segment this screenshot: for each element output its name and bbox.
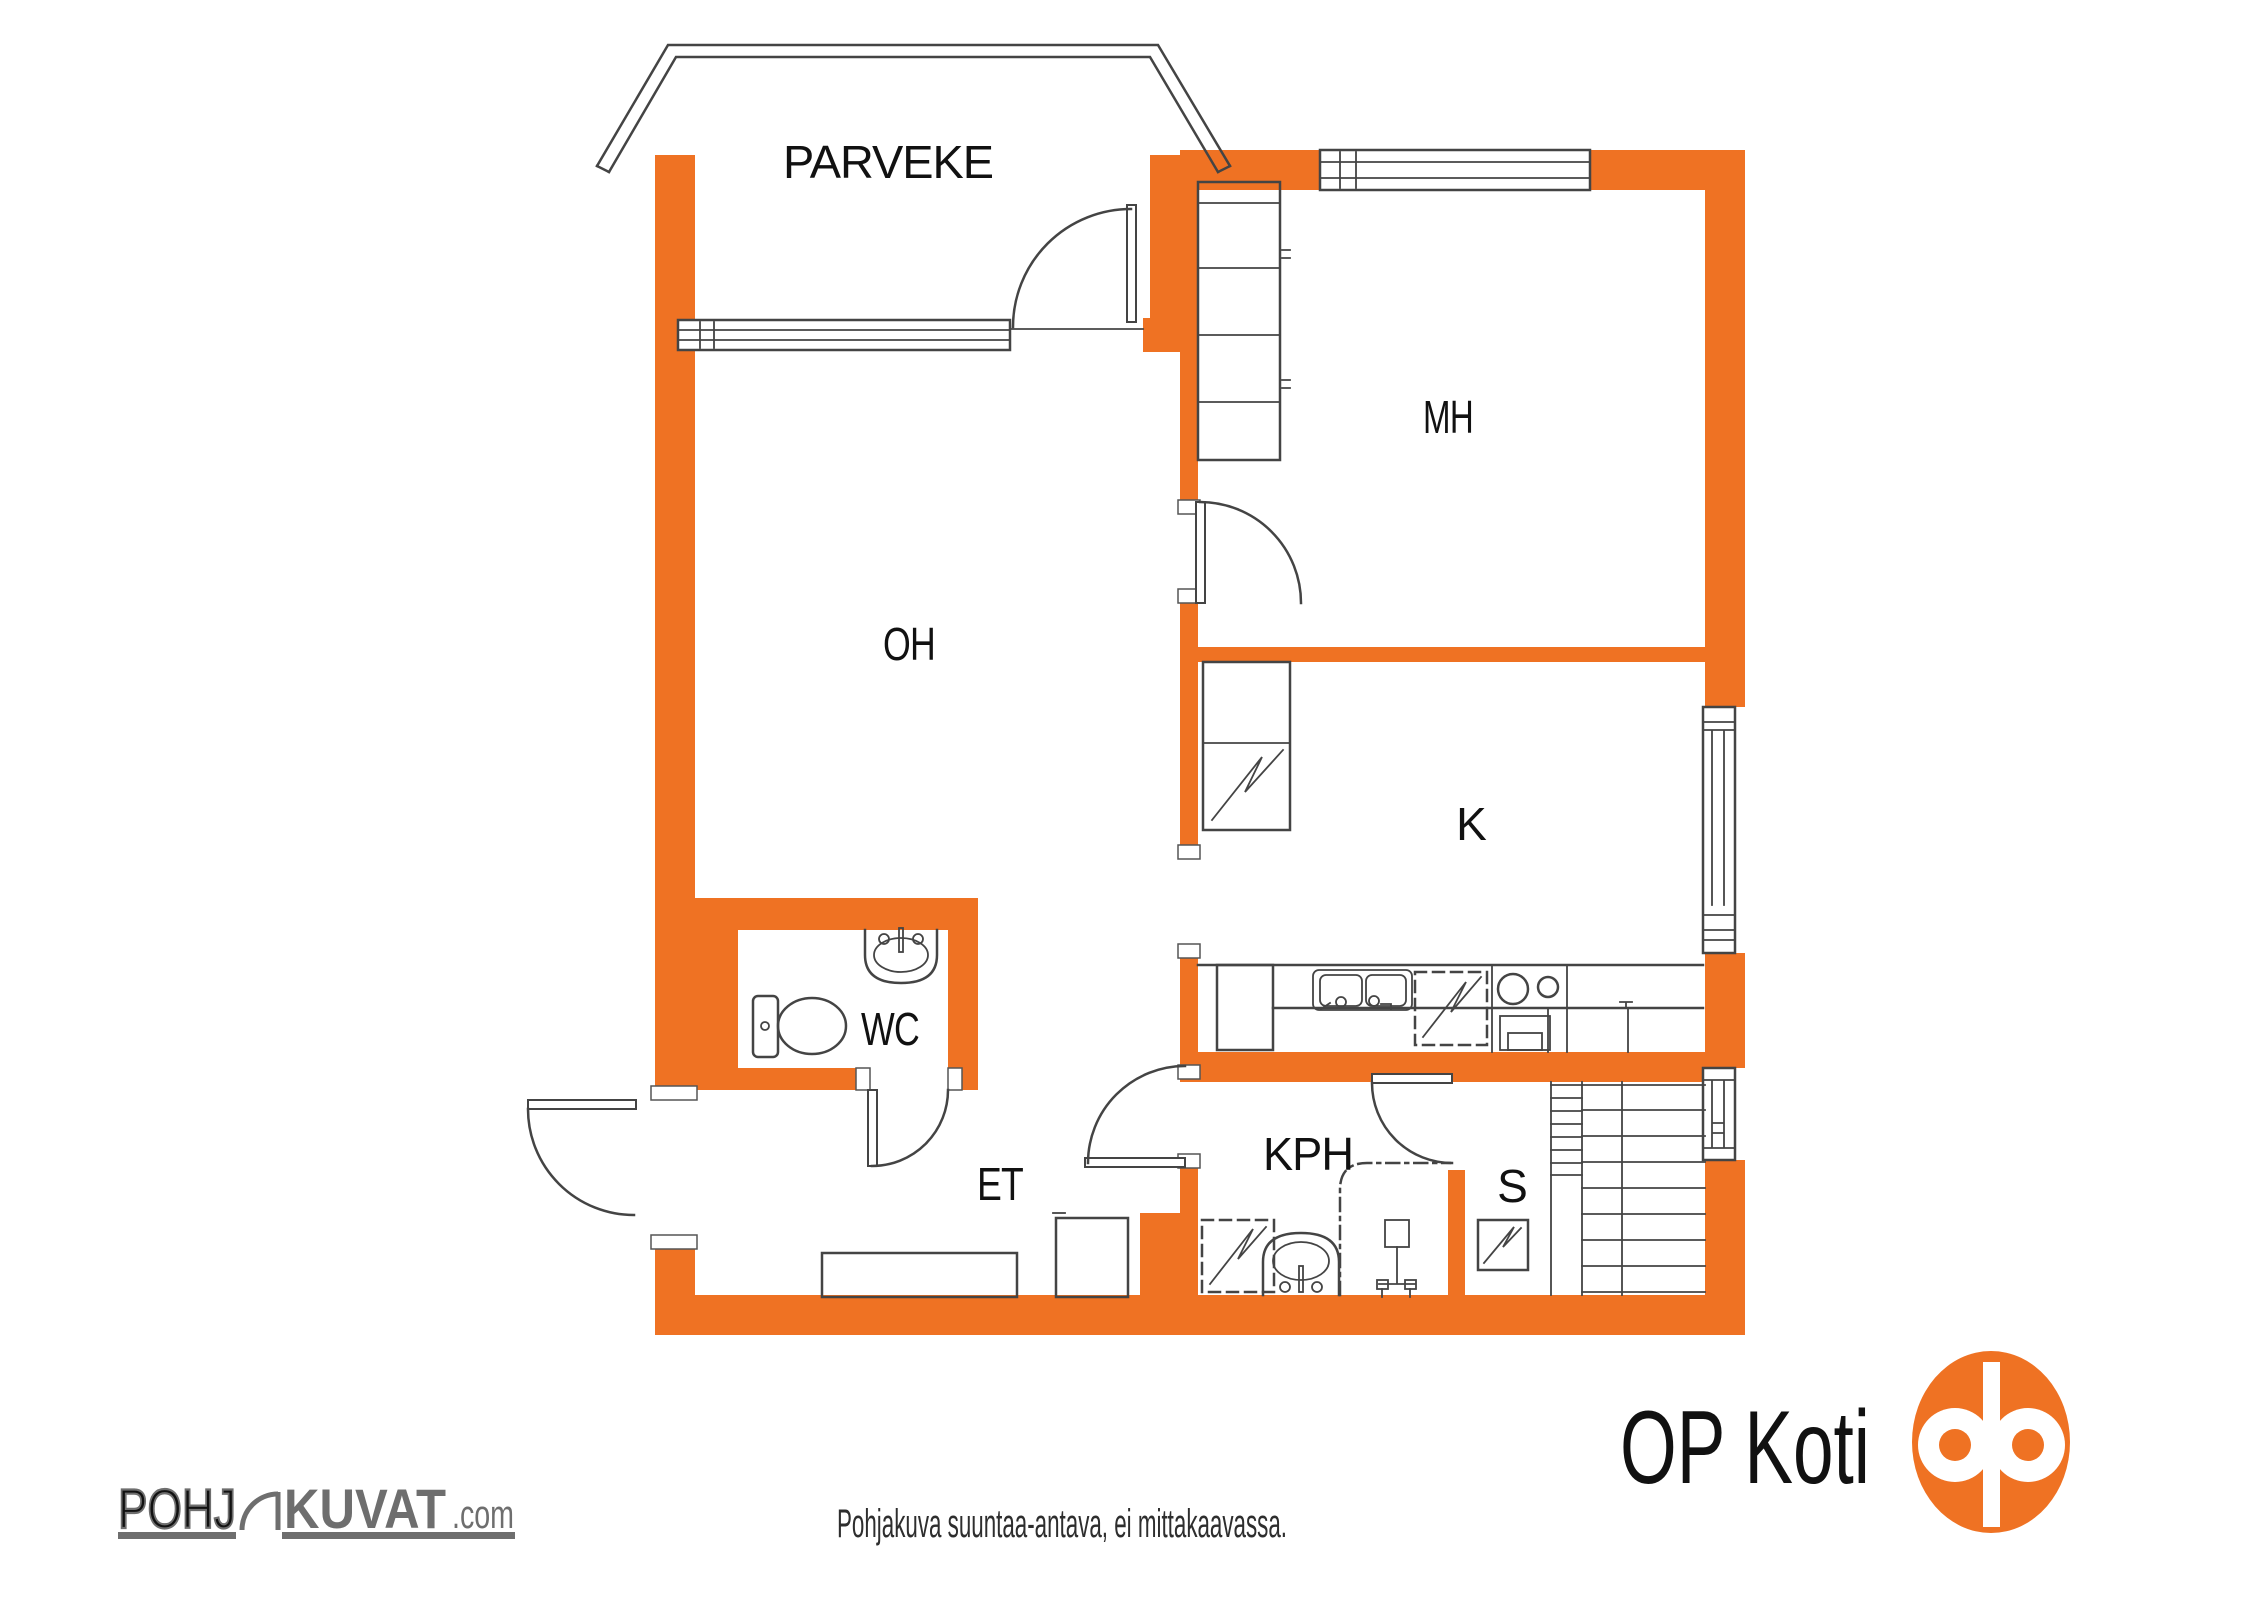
wc-door-arc xyxy=(872,1090,948,1166)
wall-wc-west xyxy=(695,930,738,1090)
et-bench xyxy=(822,1253,1017,1297)
wall-oh-mh xyxy=(1180,190,1198,500)
entrance-door-arc xyxy=(528,1109,634,1215)
room-label-kph: KPH xyxy=(1263,1128,1353,1180)
op-logo-icon xyxy=(1912,1351,2070,1533)
window-oh-balcony xyxy=(678,320,1143,350)
wall-et-kph-wide xyxy=(1140,1213,1198,1335)
wall-right-mid xyxy=(1705,953,1745,1068)
room-label-oh: OH xyxy=(883,618,935,670)
kitchen-sink xyxy=(1313,970,1412,1010)
counter-cabinet xyxy=(1217,965,1273,1050)
stairs-main-treads xyxy=(1582,1085,1705,1292)
fridge-zigzag xyxy=(1212,750,1283,820)
wall-oh-k xyxy=(1180,662,1198,845)
wc-sink xyxy=(865,928,937,983)
room-label-parveke: PARVEKE xyxy=(783,136,993,188)
shower-mixer xyxy=(1377,1220,1416,1297)
wall-wc-east xyxy=(948,930,978,1068)
mh-door-arc xyxy=(1200,502,1301,603)
wall-wc-south-left xyxy=(695,1068,870,1090)
pohjakuvat-underline-right xyxy=(282,1532,515,1539)
mh-door xyxy=(1178,500,1301,603)
et-furniture xyxy=(822,1213,1128,1297)
mh-door-leaf xyxy=(1196,502,1205,603)
room-label-wc: WC xyxy=(861,1003,919,1055)
stairs-winder-treads xyxy=(1551,1085,1582,1175)
sauna-door xyxy=(1372,1074,1452,1163)
logo-op-koti: OP Koti xyxy=(1620,1351,2070,1533)
pohjakuvat-outline-text: POHJ xyxy=(118,1477,236,1540)
wall-balcony-right xyxy=(1150,155,1180,322)
sauna-door-arc xyxy=(1372,1083,1452,1163)
wall-oh-k-low xyxy=(1180,958,1198,1065)
toilet xyxy=(753,996,846,1057)
room-label-mh: MH xyxy=(1423,391,1473,443)
entrance-door-leaf xyxy=(528,1100,636,1109)
wardrobe-door-ticks xyxy=(1282,250,1290,388)
kitchen-counter xyxy=(1198,965,1703,1052)
entrance-door xyxy=(528,1086,697,1249)
wall-kph-s xyxy=(1448,1170,1465,1295)
mh-wardrobe xyxy=(1198,182,1290,460)
logo-pohjakuvat: POHJ KUVAT .com xyxy=(118,1477,515,1540)
k-doorway xyxy=(1178,845,1200,958)
kph-fixtures xyxy=(1202,1163,1528,1297)
kitchen-fixtures xyxy=(1198,662,1703,1052)
pohjakuvat-suffix-text: .com xyxy=(452,1493,514,1537)
room-label-s: S xyxy=(1497,1160,1527,1212)
wall-top-left xyxy=(1180,150,1320,190)
water-heater-zigzag xyxy=(1484,1227,1521,1263)
wall-balcony-corner xyxy=(1143,318,1180,352)
wall-top-right xyxy=(1590,150,1745,190)
wall-right-upper xyxy=(1705,150,1745,707)
room-label-et: ET xyxy=(977,1158,1024,1210)
fridge-unit xyxy=(1203,662,1290,830)
window-mh-top xyxy=(1320,150,1590,190)
wall-wc-north xyxy=(695,898,978,930)
water-heater xyxy=(1478,1220,1528,1270)
wall-et-kph xyxy=(1180,1168,1198,1213)
stairs xyxy=(1551,1082,1705,1295)
wall-left-upper xyxy=(655,155,695,1100)
window-k-right xyxy=(1703,707,1735,953)
kph-door-arc xyxy=(1088,1066,1185,1163)
pohjakuvat-solid-text: KUVAT xyxy=(284,1477,446,1540)
kph-door-leaf xyxy=(1085,1158,1185,1167)
washing-machine-zigzag xyxy=(1210,1227,1266,1284)
balcony-door-leaf xyxy=(1127,205,1136,322)
door-arc-icon xyxy=(242,1492,278,1530)
window-stairs-right xyxy=(1703,1068,1735,1160)
pohjakuvat-underline-left xyxy=(118,1532,236,1539)
sauna-door-leaf xyxy=(1372,1074,1452,1083)
balcony-door xyxy=(1013,205,1136,327)
wc-door xyxy=(856,1068,962,1166)
stove xyxy=(1498,974,1558,1050)
disclaimer-text: Pohjakuva suuntaa-antava, ei mittakaavas… xyxy=(837,1502,1287,1546)
wall-bottom xyxy=(655,1295,1745,1335)
balcony-door-arc xyxy=(1013,209,1131,327)
floorplan-page: PARVEKE MH OH K WC ET KPH S Pohjakuva su… xyxy=(0,0,2262,1600)
wall-mh-k xyxy=(1180,647,1745,662)
op-koti-text: OP Koti xyxy=(1620,1390,1870,1506)
et-cabinet xyxy=(1056,1218,1128,1297)
wall-right-lower xyxy=(1705,1160,1745,1335)
wc-door-leaf xyxy=(868,1090,877,1166)
room-label-k: K xyxy=(1456,798,1487,850)
floorplan-svg: PARVEKE MH OH K WC ET KPH S Pohjakuva su… xyxy=(0,0,2262,1600)
shower-area-boundary xyxy=(1340,1163,1450,1295)
